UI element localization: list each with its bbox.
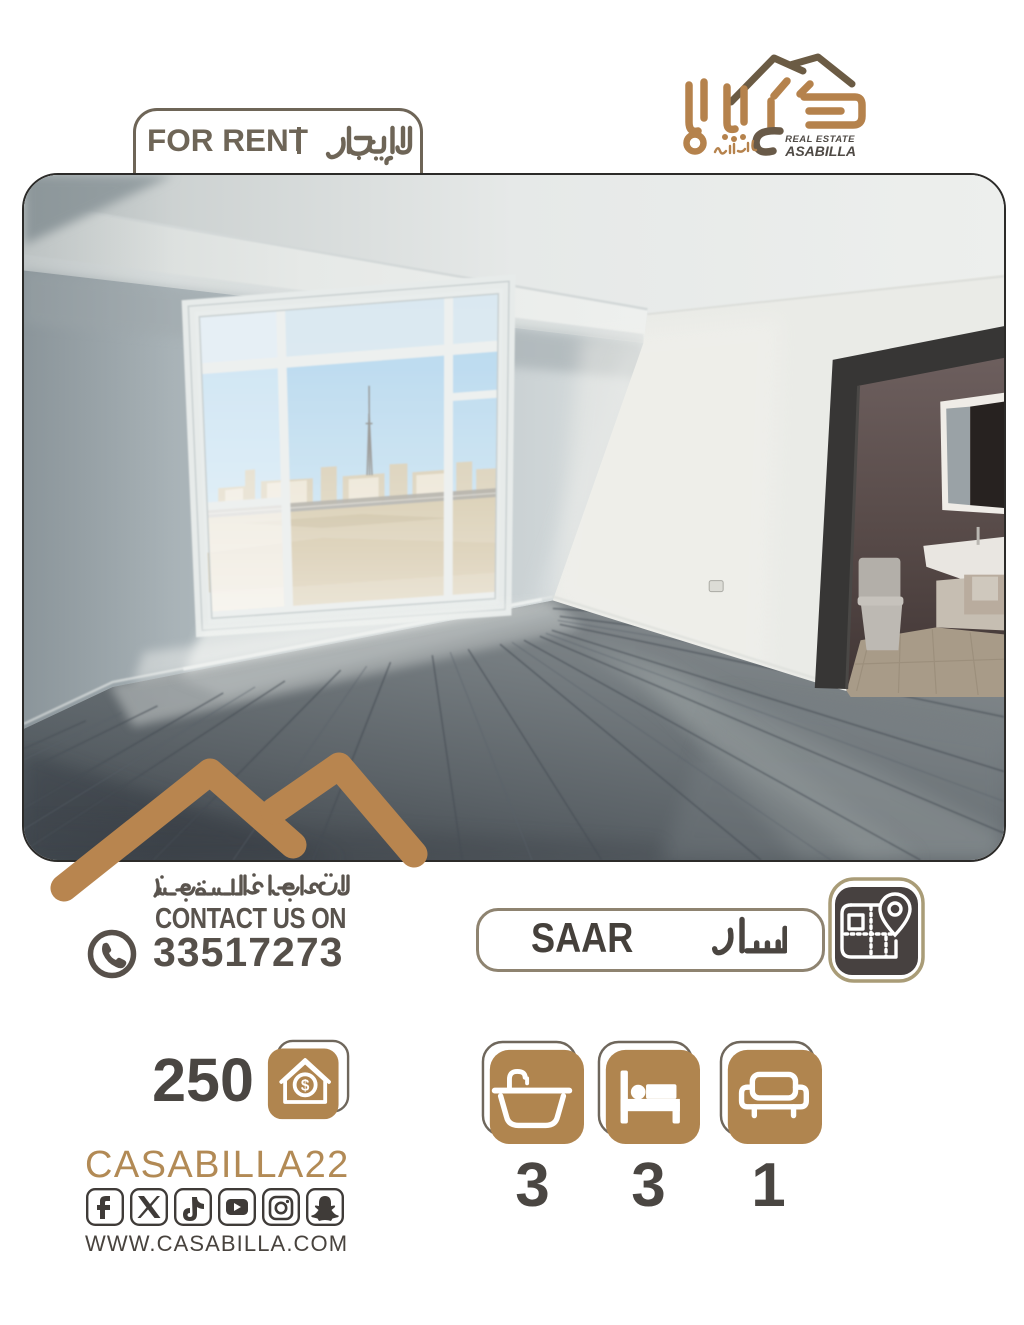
svg-text:$: $ [301,1078,310,1095]
svg-text:ASABILLA: ASABILLA [784,143,856,159]
